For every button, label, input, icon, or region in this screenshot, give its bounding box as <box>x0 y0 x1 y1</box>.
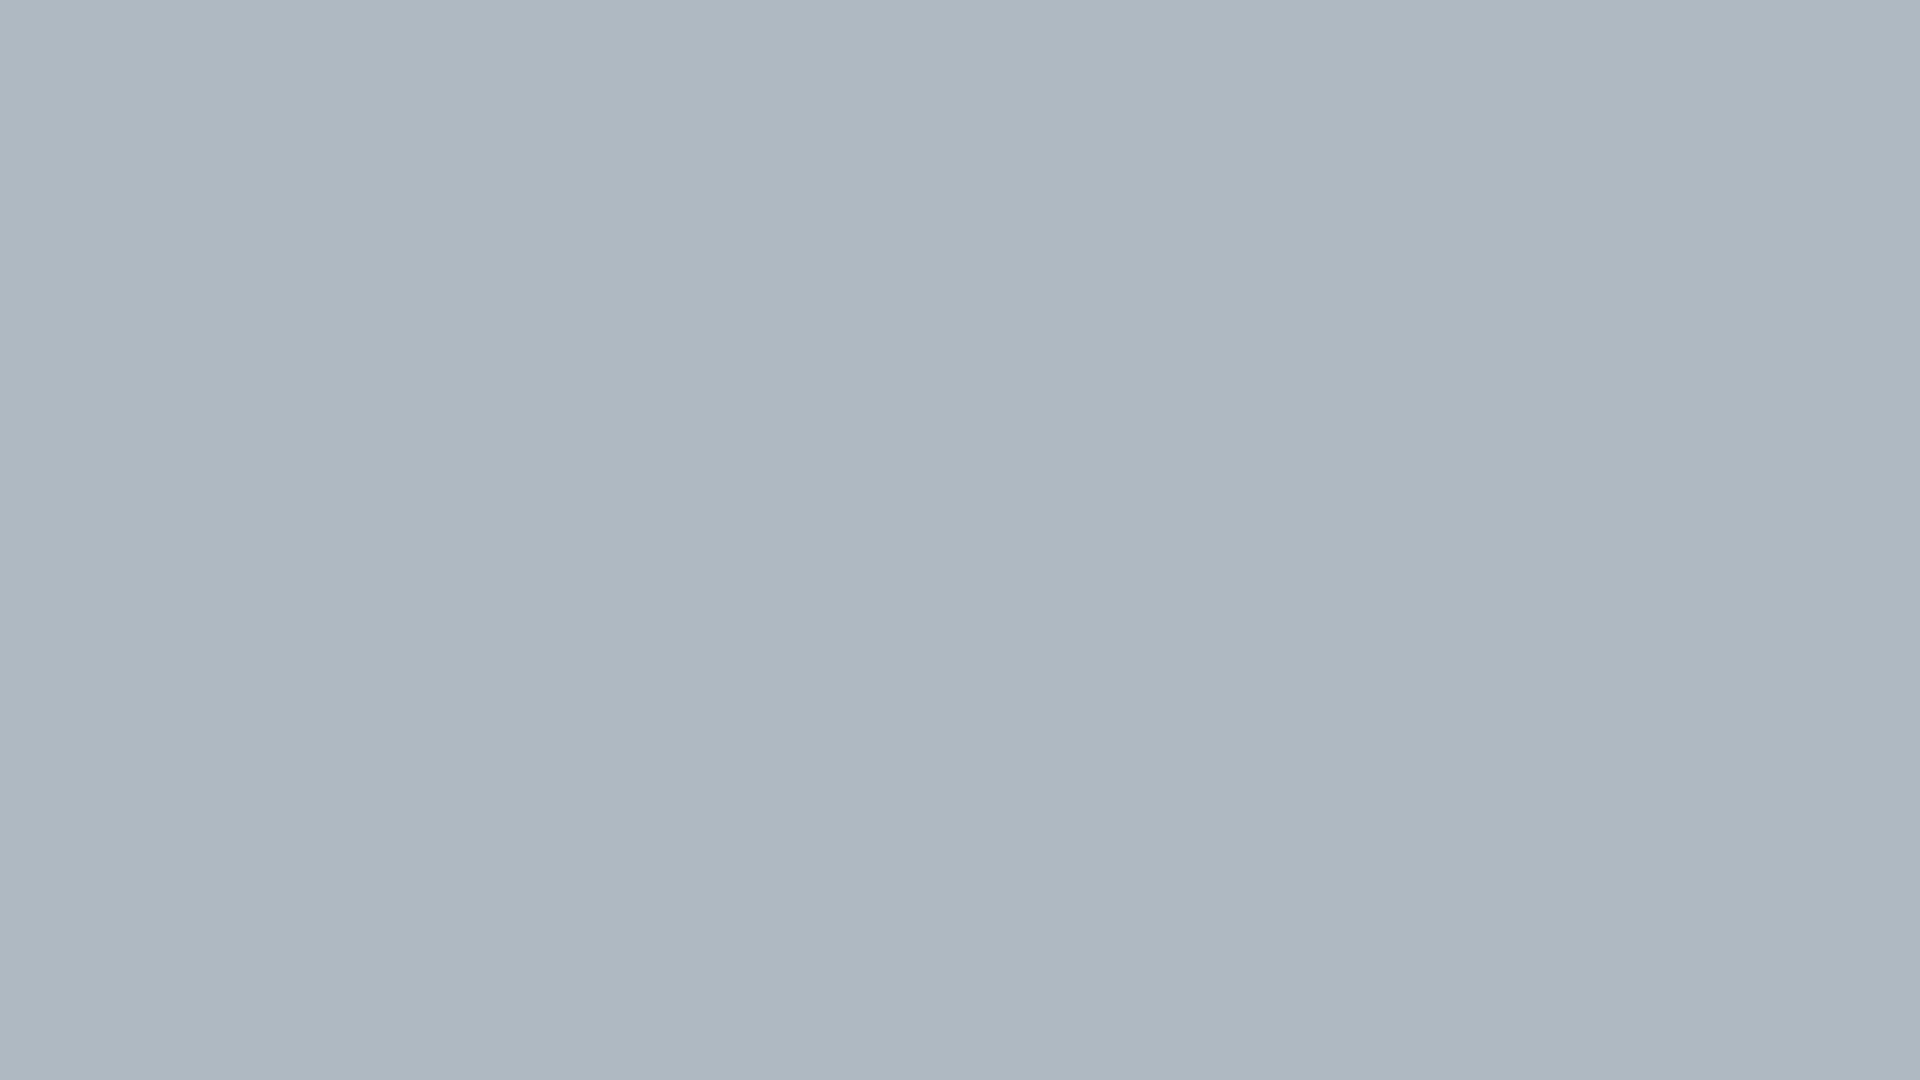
floorplan-3d-render <box>0 0 1920 1080</box>
floorplan-stage <box>0 0 1920 1080</box>
